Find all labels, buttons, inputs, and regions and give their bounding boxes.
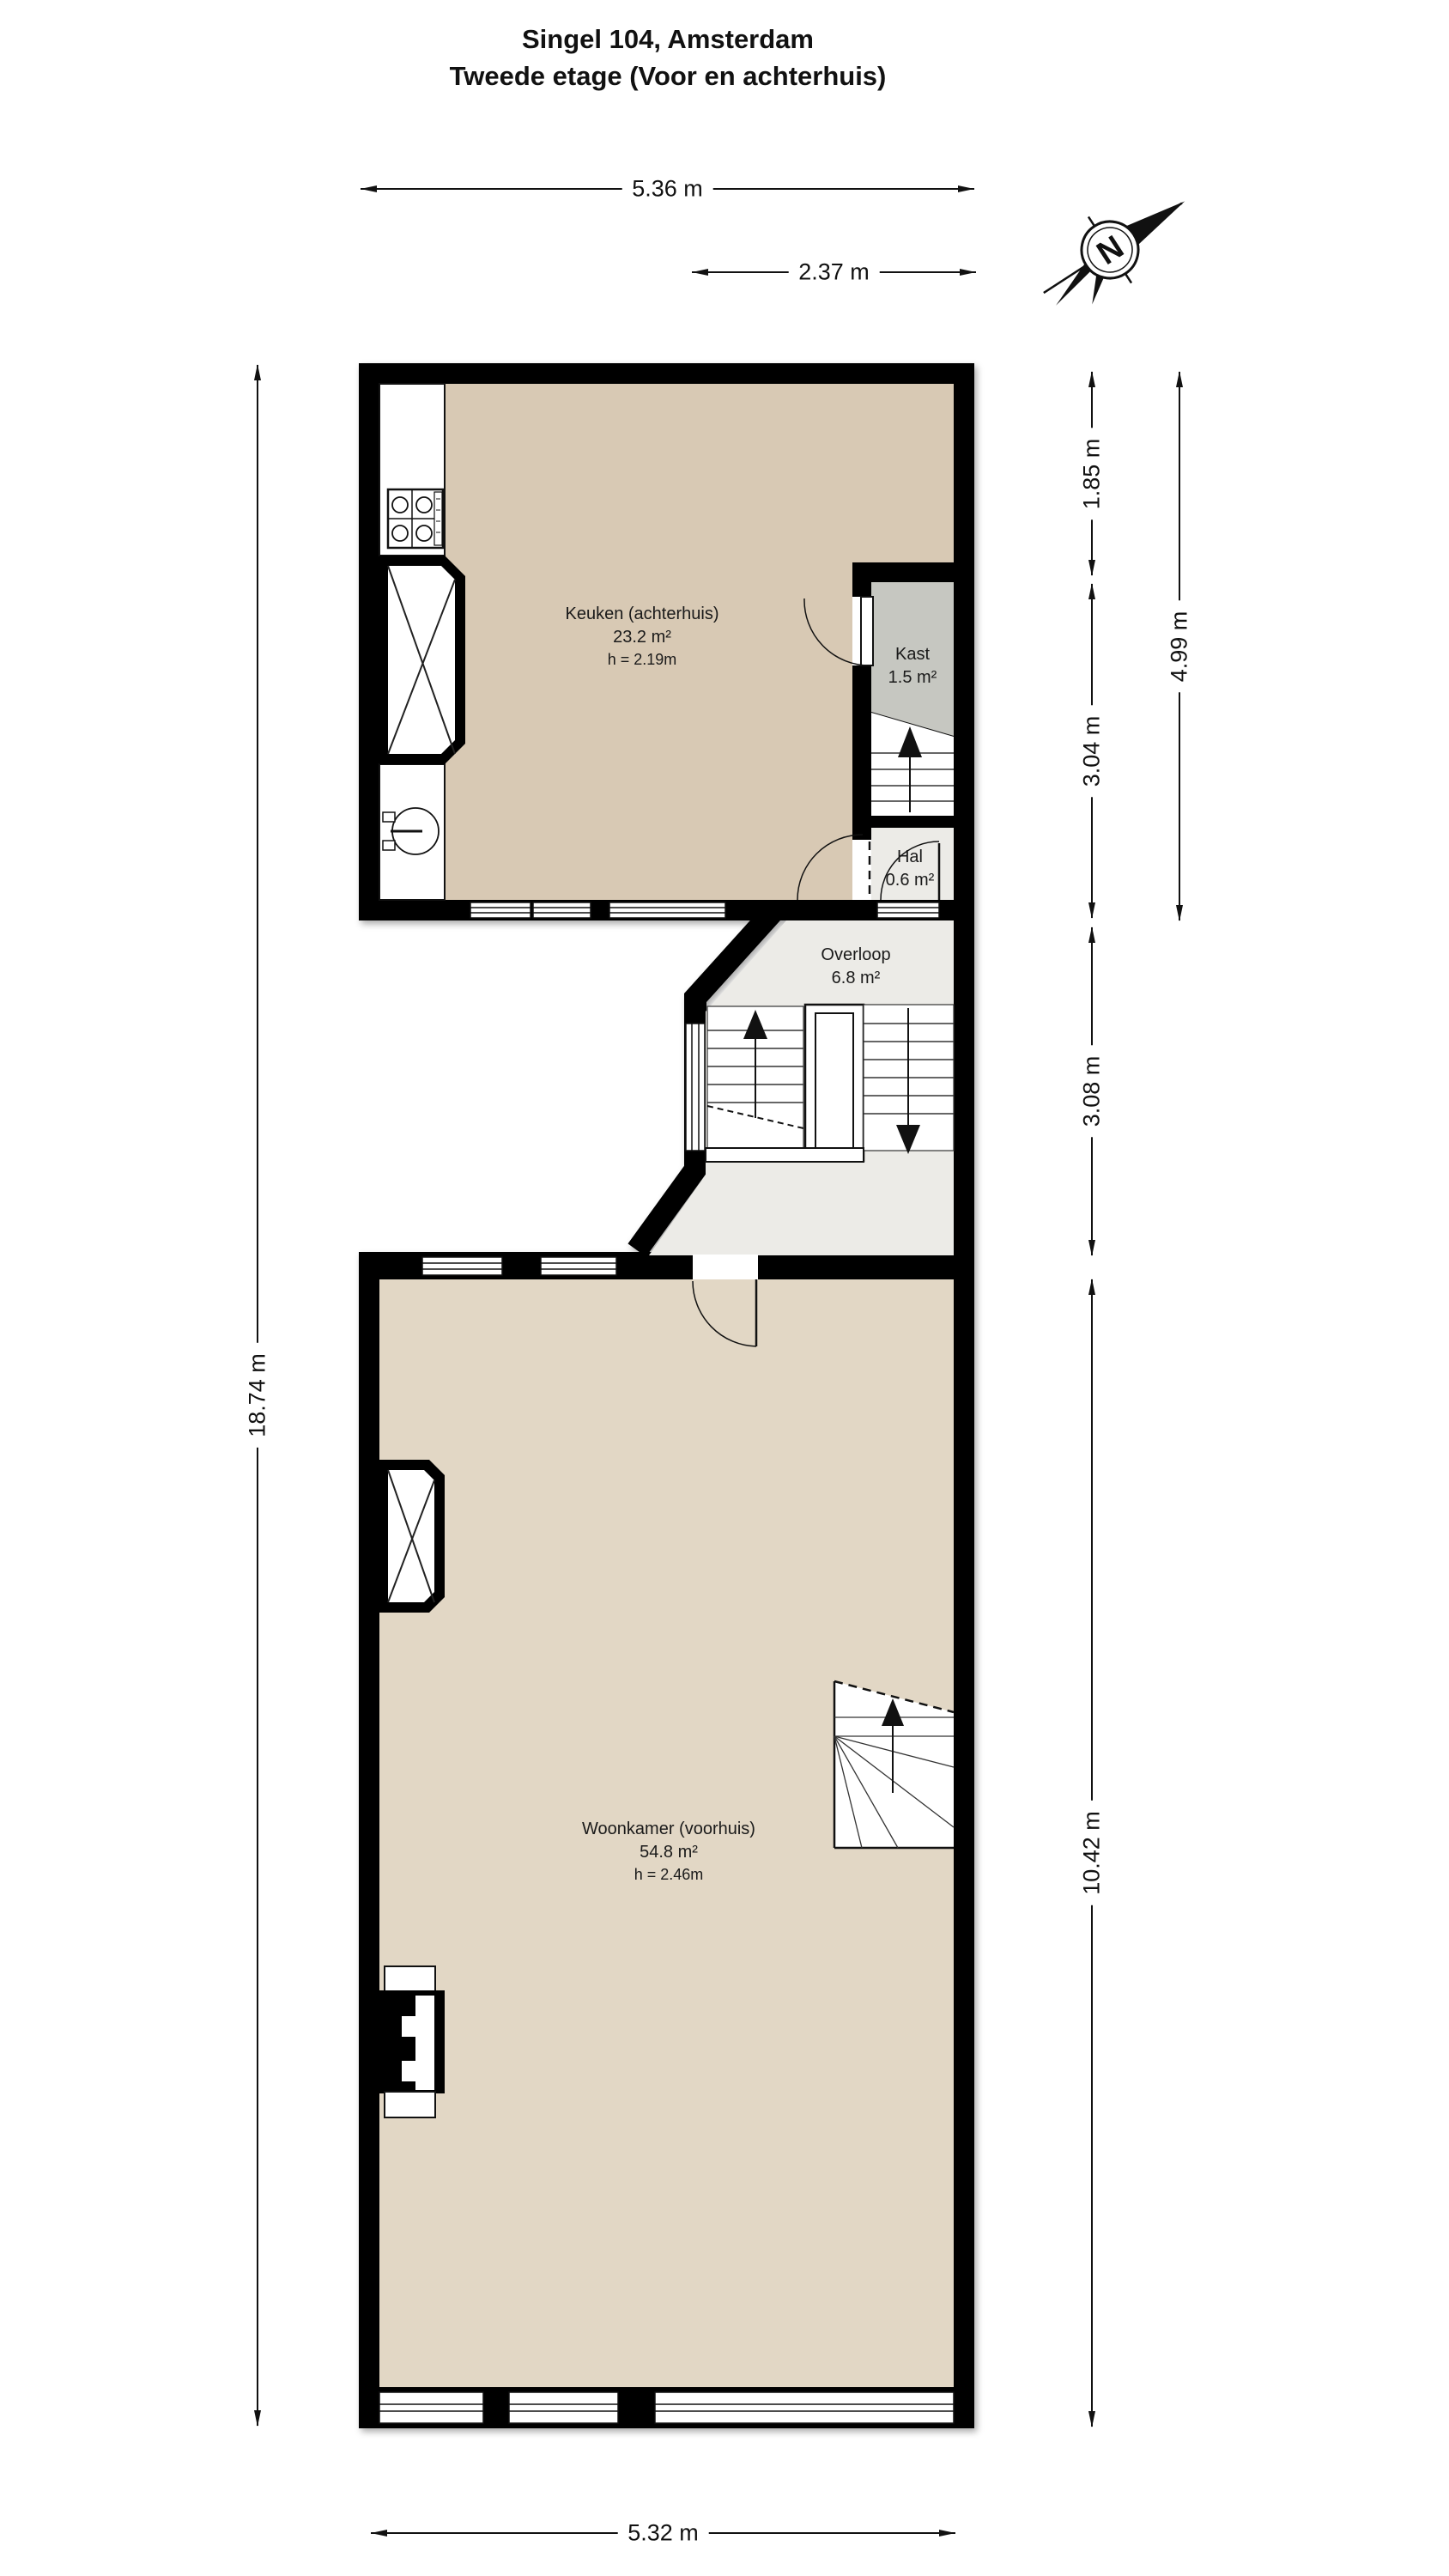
window (686, 1024, 705, 1151)
room-ceiling-height: h = 2.46m (582, 1864, 755, 1885)
stove (388, 489, 443, 548)
room-name: Overloop (821, 944, 890, 967)
room-name: Woonkamer (voorhuis) (582, 1818, 755, 1841)
dimension-right-kitchen-total: 4.99 m (1179, 372, 1180, 920)
compass-rose: N (1022, 168, 1206, 326)
room-ceiling-height: h = 2.19m (566, 649, 719, 670)
floorplan-page: N Singel 104, Amsterdam Tweede etage (Vo… (0, 0, 1449, 2576)
room-label-keuken: Keuken (achterhuis) 23.2 m² h = 2.19m (566, 603, 719, 670)
page-title: Singel 104, Amsterdam Tweede etage (Voor… (450, 21, 887, 94)
room-area: 23.2 m² (566, 626, 719, 649)
window (470, 902, 530, 918)
woonkamer-bottom-windows (379, 2392, 954, 2423)
room-area: 0.6 m² (886, 869, 935, 892)
room-name: Hal (886, 846, 935, 869)
room-label-kast: Kast 1.5 m² (888, 643, 937, 690)
room-name: Kast (888, 643, 937, 666)
sink (383, 808, 439, 854)
room-area: 6.8 m² (821, 967, 890, 990)
window (609, 902, 725, 918)
room-label-overloop: Overloop 6.8 m² (821, 944, 890, 990)
room-label-hal: Hal 0.6 m² (886, 846, 935, 892)
window (422, 1257, 502, 1275)
dimension-right-kitchen-lower: 3.04 m (1091, 584, 1093, 918)
dimension-right-woonkamer: 10.42 m (1091, 1279, 1093, 2427)
room-area: 1.5 m² (888, 666, 937, 690)
room-area: 54.8 m² (582, 1841, 755, 1864)
title-floor: Tweede etage (Voor en achterhuis) (450, 58, 887, 94)
stairs-up-flight (707, 1006, 803, 1148)
woonkamer-shaft (379, 1460, 445, 1613)
dimension-top-partial: 2.37 m (692, 271, 976, 273)
window (379, 2392, 483, 2423)
kitchen-shaft (379, 556, 465, 764)
title-address: Singel 104, Amsterdam (450, 21, 887, 58)
floorplan-drawing: N (0, 0, 1449, 2576)
dimension-top-total: 5.36 m (361, 188, 974, 190)
window (509, 2392, 618, 2423)
stair-stringer (805, 1005, 864, 1161)
dimension-right-overloop: 3.08 m (1091, 927, 1093, 1255)
dimension-right-kitchen-upper: 1.85 m (1091, 372, 1093, 575)
room-name: Keuken (achterhuis) (566, 603, 719, 626)
dimension-bottom-total: 5.32 m (371, 2532, 955, 2534)
stairs-down-flight (864, 1005, 954, 1154)
window (655, 2392, 954, 2423)
dimension-left-total: 18.74 m (257, 365, 258, 2426)
window (541, 1257, 616, 1275)
middle-right-wall (954, 900, 974, 1255)
overloop-block (649, 920, 954, 1255)
window (877, 902, 939, 918)
fireplace (379, 1966, 445, 2117)
room-label-woonkamer: Woonkamer (voorhuis) 54.8 m² h = 2.46m (582, 1818, 755, 1885)
window (533, 902, 591, 918)
stair-landing-edge (706, 1148, 864, 1162)
